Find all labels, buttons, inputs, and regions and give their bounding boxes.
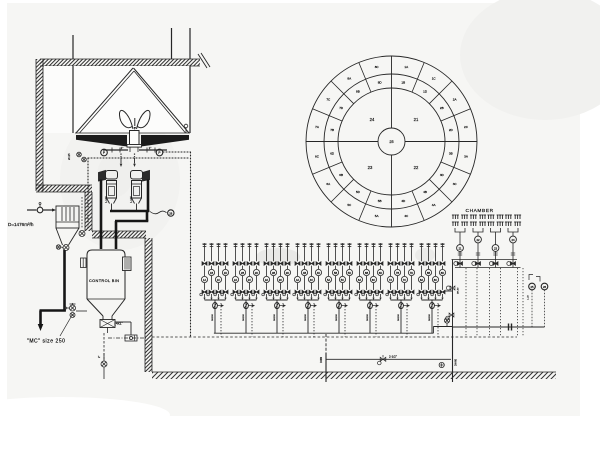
svg-text:6B: 6B [365,271,368,275]
svg-text:DN80: DN80 [320,356,323,363]
svg-text:8B: 8B [427,271,430,275]
svg-text:1C: 1C [217,278,220,282]
svg-text:1": 1" [149,146,152,150]
svg-text:8D: 8D [441,271,444,275]
svg-text:DN200: DN200 [305,313,307,321]
svg-text:7B: 7B [396,271,399,275]
svg-text:CHAMBER: CHAMBER [466,208,494,214]
svg-text:23: 23 [368,165,373,170]
svg-text:22: 22 [414,165,419,170]
svg-text:7C: 7C [403,278,406,282]
svg-text:P: P [103,151,105,155]
svg-text:CONTROL BIN: CONTROL BIN [89,278,119,283]
svg-text:2A: 2A [234,278,237,282]
svg-text:7B: 7B [330,128,334,132]
svg-text:3C: 3C [279,278,282,282]
svg-text:6C: 6C [372,278,375,282]
svg-text:5B: 5B [334,271,337,275]
svg-text:4D: 4D [317,271,320,275]
svg-text:DN200: DN200 [212,313,214,321]
svg-text:6A: 6A [358,278,361,282]
svg-text:D=1476m³/h: D=1476m³/h [8,222,34,227]
svg-text:22: 22 [476,238,480,242]
svg-text:8B: 8B [356,89,360,93]
svg-text:4C: 4C [310,278,313,282]
svg-text:24: 24 [370,117,375,122]
svg-text:1-1/2": 1-1/2" [130,196,133,203]
svg-text:6D: 6D [379,271,382,275]
svg-text:4B: 4B [303,271,306,275]
svg-text:8A: 8A [420,278,423,282]
svg-text:4A: 4A [296,278,299,282]
svg-text:3D: 3D [286,271,289,275]
svg-text:2D: 2D [255,271,258,275]
svg-text:1-1/2": 1-1/2" [105,196,108,203]
svg-text:DN-80: DN-80 [455,358,458,366]
svg-text:7A: 7A [389,278,392,282]
svg-text:7D: 7D [410,271,413,275]
svg-text:2-1/2": 2-1/2" [389,355,397,359]
svg-text:3A: 3A [265,278,268,282]
svg-text:23: 23 [494,246,498,250]
svg-text:4B: 4B [423,190,427,194]
svg-text:1": 1" [121,146,124,150]
svg-text:1B: 1B [210,271,213,275]
svg-text:2C: 2C [248,278,251,282]
svg-text:5A: 5A [327,278,330,282]
svg-text:8C: 8C [434,278,437,282]
svg-text:26: 26 [169,211,173,215]
svg-text:26: 26 [543,285,547,289]
svg-text:1A: 1A [203,278,206,282]
svg-text:1D: 1D [224,271,227,275]
svg-text:P: P [158,151,160,155]
svg-text:DN200: DN200 [398,313,400,321]
svg-text:25: 25 [530,285,534,289]
svg-text:5C: 5C [341,278,344,282]
svg-text:24: 24 [511,238,515,242]
svg-text:DN-50: DN-50 [458,287,460,294]
svg-text:21: 21 [414,117,419,122]
svg-text:DN200: DN200 [243,313,245,321]
svg-text:2B: 2B [241,271,244,275]
svg-text:DN200: DN200 [429,313,431,321]
svg-text:DN200: DN200 [274,313,276,321]
svg-text:"MC" size 250: "MC" size 250 [27,339,66,345]
svg-text:25: 25 [389,140,393,144]
svg-text:1B: 1B [401,80,405,84]
svg-text:3B: 3B [449,151,453,155]
svg-text:∅125: ∅125 [67,153,71,160]
svg-text:5D: 5D [348,271,351,275]
svg-text:DN200: DN200 [336,313,338,321]
svg-text:2B: 2B [440,106,444,110]
svg-text:DN200: DN200 [367,313,369,321]
svg-text:5B: 5B [378,199,382,203]
svg-text:2": 2" [98,356,101,358]
svg-text:6B: 6B [339,173,343,177]
svg-text:3B: 3B [272,271,275,275]
svg-text:21: 21 [458,246,462,250]
